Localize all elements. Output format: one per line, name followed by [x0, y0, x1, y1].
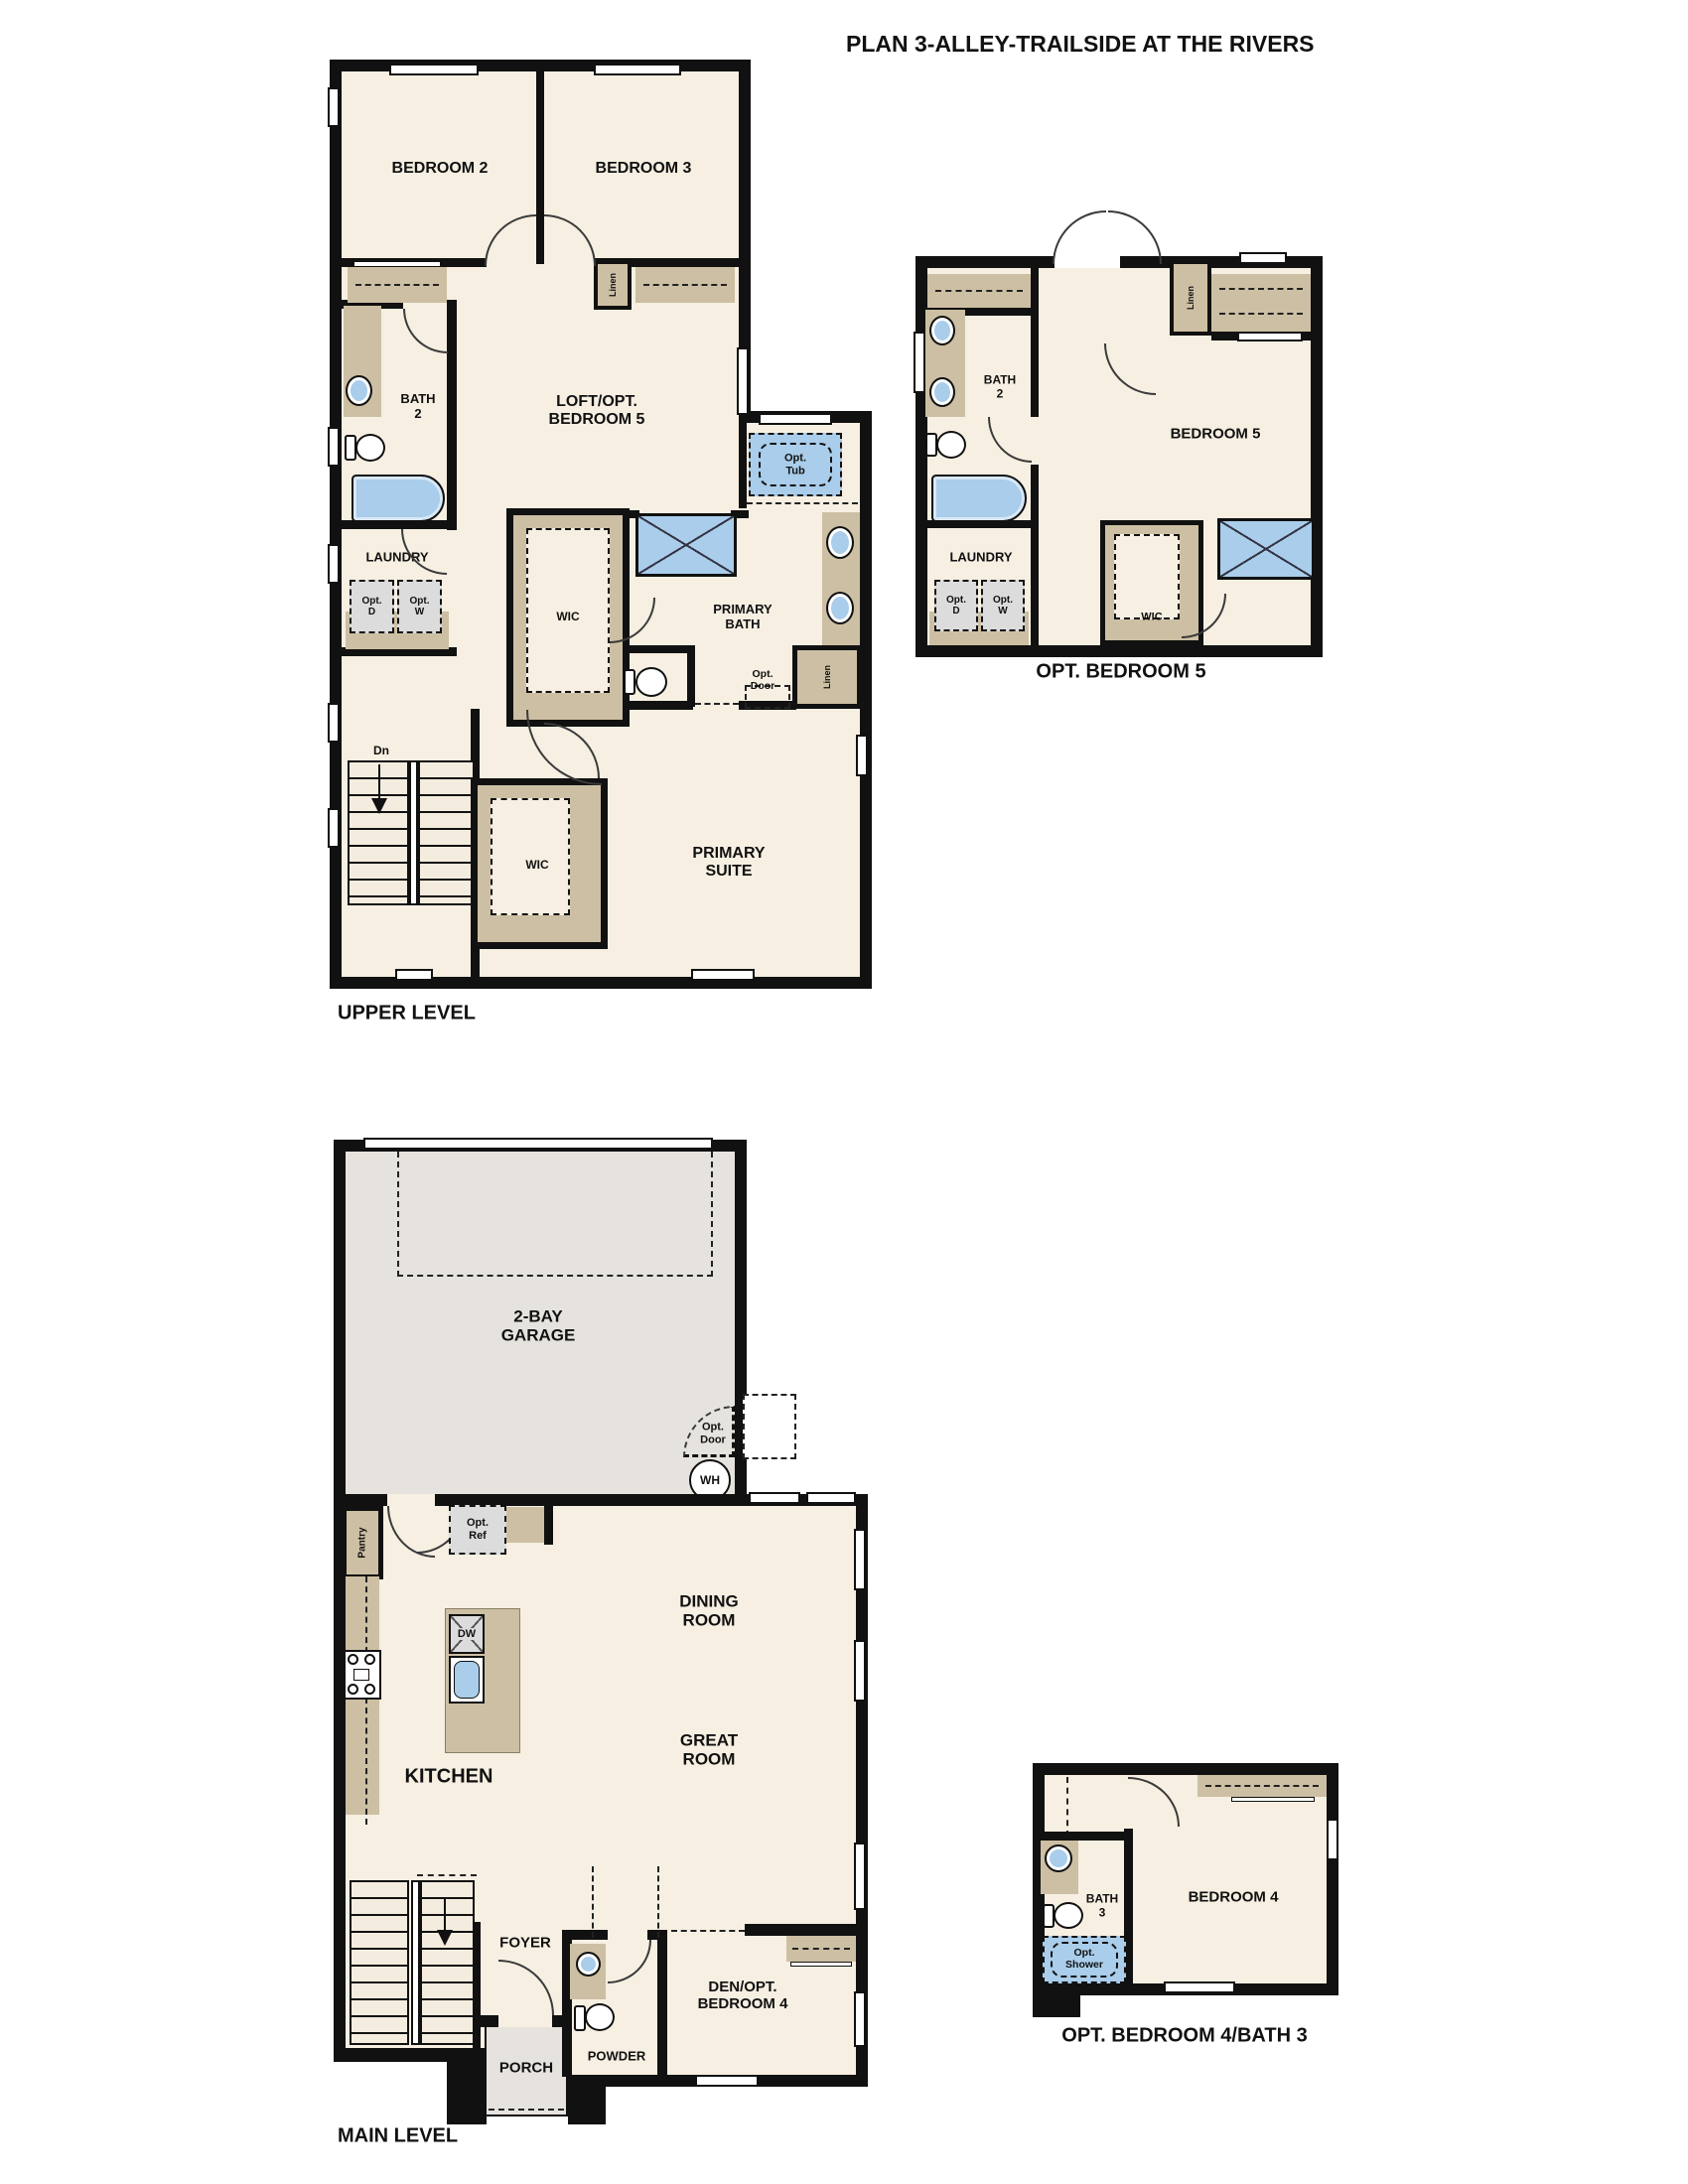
stair-rail: [411, 1880, 420, 2045]
wall: [536, 71, 544, 264]
wic-shelving: [1114, 534, 1180, 619]
opt-shower-label: Opt.Shower: [1065, 1948, 1103, 1972]
primary-bath-label: PRIMARYBATH: [713, 603, 772, 632]
closet-rod: [1219, 313, 1303, 315]
sink: [929, 316, 955, 345]
wall: [562, 1930, 608, 1940]
stair-flight: [420, 1880, 475, 2045]
closet-bypass-door: [790, 1962, 852, 1967]
sink: [1045, 1844, 1072, 1872]
porch-label: PORCH: [499, 2059, 553, 2076]
closet-rod: [1205, 1785, 1319, 1787]
burner: [348, 1654, 358, 1665]
upper-level-label: UPPER LEVEL: [338, 1003, 476, 1025]
counter-edge: [365, 1576, 367, 1825]
stair-rail: [409, 760, 418, 905]
stair-arrow-head: [437, 1930, 453, 1946]
window: [1239, 252, 1287, 264]
window: [695, 2075, 759, 2087]
window: [914, 332, 925, 393]
garage-label: 2-BAYGARAGE: [501, 1307, 576, 1346]
sink: [576, 1952, 601, 1977]
bath3-label: BATH3: [1086, 1892, 1118, 1919]
window: [1164, 1981, 1235, 1993]
porch-step: [489, 2109, 564, 2111]
window: [1327, 1819, 1338, 1860]
opt-bedroom4-label: OPT. BEDROOM 4/BATH 3: [1061, 2025, 1307, 2048]
opt-door-landing: [743, 1394, 796, 1459]
linen-label: Linen: [1186, 286, 1196, 310]
wall: [927, 520, 1039, 528]
window: [328, 427, 340, 467]
bedroom2-label: BEDROOM 2: [392, 160, 489, 178]
window: [854, 1991, 866, 2047]
window: [856, 735, 868, 776]
bath2-label: BATH2: [984, 373, 1016, 400]
primary-suite-label: PRIMARYSUITE: [692, 845, 765, 881]
wall: [739, 423, 747, 508]
sink: [826, 592, 854, 624]
opt-door-opening: [695, 703, 739, 705]
bedroom4-label: BEDROOM 4: [1189, 1888, 1279, 1905]
opt-opening: [657, 1866, 659, 1938]
closet-rod: [792, 1948, 850, 1950]
bathtub: [352, 475, 445, 522]
linen-label: Linen: [822, 665, 832, 689]
window: [594, 64, 681, 75]
window: [1237, 332, 1303, 341]
wic-label: WIC: [1141, 612, 1162, 624]
door-arc: [1108, 210, 1162, 264]
burner: [364, 1654, 375, 1665]
wall: [1033, 1983, 1080, 2017]
opt-door-label: Opt.Door: [700, 1421, 726, 1445]
window: [328, 703, 340, 743]
sink: [826, 526, 854, 559]
door-opening: [1031, 417, 1039, 465]
opt-refrigerator: Opt.Ref: [449, 1505, 506, 1555]
wall: [334, 2048, 455, 2062]
wall: [475, 2015, 498, 2027]
window: [806, 1492, 856, 1504]
opt-bedroom5-label: OPT. BEDROOM 5: [1036, 661, 1205, 684]
toilet-bowl: [1054, 1902, 1083, 1929]
door-opening: [387, 1494, 435, 1506]
window: [328, 808, 340, 848]
floor-plan-sheet: PLAN 3-ALLEY-TRAILSIDE AT THE RIVERS Lin…: [0, 0, 1688, 2184]
kitchen-sink: [454, 1661, 480, 1699]
kitchen-label: KITCHEN: [405, 1766, 493, 1789]
bath2-label: BATH2: [400, 392, 435, 422]
window: [854, 1529, 866, 1590]
wall: [447, 300, 457, 530]
toilet: [624, 669, 635, 695]
window: [854, 1640, 866, 1702]
stair-arrow: [378, 764, 380, 800]
laundry-label: LAUNDRY: [949, 551, 1012, 566]
toilet-bowl: [355, 434, 385, 462]
wall: [745, 1924, 868, 1936]
wall: [1045, 1832, 1124, 1841]
window: [749, 1492, 800, 1504]
toilet-bowl: [585, 2003, 615, 2031]
closet-rod: [1219, 288, 1303, 290]
garage-door: [363, 1138, 713, 1150]
closet-rod: [935, 290, 1023, 292]
linen-label: Linen: [608, 273, 618, 297]
pantry-label: Pantry: [357, 1527, 368, 1558]
opt-tub-label: Opt.Tub: [784, 452, 806, 477]
opt-dryer: Opt.D: [934, 580, 978, 631]
window: [328, 544, 340, 584]
great-room-label: GREATROOM: [680, 1731, 738, 1770]
dishwasher: DW: [449, 1614, 485, 1654]
burner: [364, 1684, 375, 1695]
shower: [635, 513, 737, 577]
stairs-dn-label: Dn: [373, 745, 389, 758]
window: [389, 64, 479, 75]
toilet-bowl: [635, 667, 667, 697]
door-arc: [1053, 210, 1106, 264]
wic-label: WIC: [525, 859, 548, 873]
garage-apron: [397, 1152, 713, 1277]
porch-pier: [568, 2081, 606, 2124]
closet-rod: [643, 284, 727, 286]
plan-title: PLAN 3-ALLEY-TRAILSIDE AT THE RIVERS: [846, 31, 1315, 57]
loft-label: LOFT/OPT.BEDROOM 5: [549, 393, 645, 429]
sink: [929, 377, 955, 407]
stair-flight: [350, 1880, 409, 2045]
bathtub: [931, 475, 1027, 522]
wall: [657, 1930, 667, 2077]
opt-washer: Opt.W: [397, 580, 442, 633]
stair-flight: [418, 760, 475, 905]
bedroom5-label: BEDROOM 5: [1171, 425, 1261, 442]
window: [395, 969, 433, 981]
wall: [544, 1497, 553, 1545]
window: [691, 969, 755, 981]
closet: [1211, 274, 1311, 332]
shower: [1217, 518, 1315, 580]
opt-tub-boundary: [747, 502, 858, 504]
cabinet: [506, 1507, 544, 1543]
wall: [687, 653, 695, 707]
stair-break-line: [417, 1874, 477, 1876]
closet-rod: [355, 284, 439, 286]
dining-room-label: DININGROOM: [679, 1592, 739, 1631]
foyer-label: FOYER: [499, 1934, 551, 1951]
opt-wall: [671, 1930, 745, 1932]
main-level-label: MAIN LEVEL: [338, 2125, 458, 2148]
wall: [473, 1922, 481, 2049]
opt-washer: Opt.W: [981, 580, 1025, 631]
range-center: [353, 1669, 369, 1681]
toilet-bowl: [936, 431, 966, 459]
footprint-cut: [334, 2062, 447, 2095]
opt-opening: [592, 1866, 594, 1938]
opt-opening: [1066, 1777, 1068, 1837]
stair-arrow: [444, 1898, 446, 1932]
stair-arrow-head: [371, 798, 387, 814]
wic-label: WIC: [556, 611, 579, 624]
opt-dryer: Opt.D: [350, 580, 394, 633]
porch-pier: [447, 2048, 487, 2124]
opt-door-label: Opt.Door: [751, 669, 775, 693]
window: [737, 347, 749, 415]
window: [759, 413, 832, 425]
burner: [348, 1684, 358, 1695]
window: [854, 1843, 866, 1910]
closet-bypass-door: [1231, 1797, 1315, 1802]
bedroom3-label: BEDROOM 3: [596, 160, 692, 178]
window: [328, 87, 340, 127]
den-label: DEN/OPT.BEDROOM 4: [698, 1979, 788, 2012]
powder-label: POWDER: [588, 2050, 646, 2065]
wic-shelving: [491, 798, 570, 915]
sink: [346, 375, 372, 406]
